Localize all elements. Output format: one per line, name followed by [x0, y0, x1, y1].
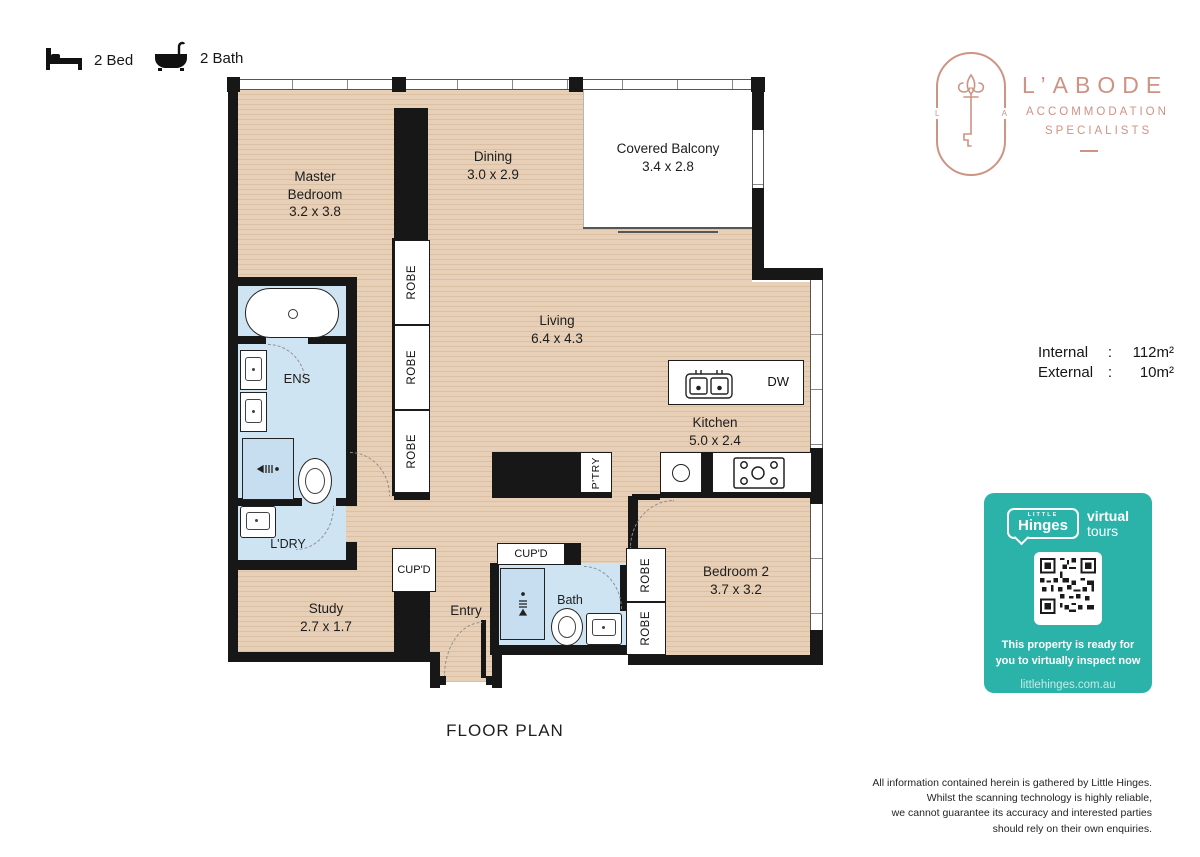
hinges-brand-label: Hinges — [1018, 518, 1068, 533]
tours-message-line1: This property is ready for — [1002, 639, 1135, 651]
cooktop-icon — [733, 457, 791, 489]
qr-code — [1034, 552, 1102, 625]
balcony-slider-track — [583, 227, 752, 229]
monogram-right: A — [1000, 108, 1009, 119]
room-name: Bedroom — [288, 187, 343, 202]
balcony-east-wall-lower — [752, 188, 764, 276]
south-wall-bedroom2 — [628, 655, 823, 665]
master-ensuite-wall — [238, 277, 357, 286]
disclaimer-line: All information contained herein is gath… — [872, 777, 1152, 789]
laundry-basin — [246, 512, 270, 530]
pantry-label: P'TRY — [590, 457, 602, 489]
bedroom2-east-window — [810, 504, 823, 630]
north-window-band — [238, 79, 755, 90]
room-dims: 3.7 x 3.2 — [710, 582, 762, 597]
laundry-label: L'DRY — [253, 536, 323, 552]
bedroom2-label: Bedroom 2 3.7 x 3.2 — [666, 563, 806, 598]
tours-message-line2: you to virtually inspect now — [996, 655, 1141, 667]
bedroom2-robe-2: ROBE — [626, 602, 666, 655]
bed-icon — [44, 44, 84, 77]
bed-count-label: 2 Bed — [94, 52, 133, 69]
bedroom2-robe-1: ROBE — [626, 548, 666, 602]
bath-north-wall-stub — [565, 543, 581, 565]
study-label: Study 2.7 x 1.7 — [266, 600, 386, 635]
ensuite-bathtub — [245, 288, 339, 338]
bath-cupboard: CUP'D — [497, 543, 565, 565]
double-sink-icon — [685, 369, 733, 399]
kitchen-base-wall-right — [660, 492, 812, 498]
ensuite-laundry-divider-stub — [336, 498, 357, 506]
sink-drain — [602, 626, 605, 629]
west-wall — [228, 84, 238, 662]
bath-toilet — [551, 608, 583, 646]
external-colon: : — [1102, 364, 1118, 381]
virtual-tours-card: LITTLE Hinges virtual tours — [984, 493, 1152, 693]
brand-subtitle-2: SPECIALISTS — [1045, 125, 1152, 137]
robe-1-label: ROBE — [406, 265, 418, 300]
robe-2-label: ROBE — [406, 350, 418, 385]
tours-label: tours — [1087, 524, 1129, 539]
qr-code-icon — [1040, 558, 1096, 614]
northeast-return-wall — [752, 268, 823, 280]
master-bedroom-label: Master Bedroom 3.2 x 3.8 — [270, 168, 360, 221]
balcony-east-window — [752, 130, 764, 188]
toilet-bowl — [558, 616, 577, 638]
bath-icon — [152, 40, 190, 77]
hinges-logo-bubble: LITTLE Hinges — [1007, 508, 1079, 539]
tours-message: This property is ready for you to virtua… — [996, 638, 1141, 670]
bedroom2-door-leaf — [632, 494, 660, 500]
balcony-slider-panel — [618, 231, 718, 233]
brand-logo-pill: L A — [936, 52, 1006, 176]
pantry: P'TRY — [580, 452, 612, 494]
robe-3: ROBE — [394, 410, 430, 493]
ensuite-toilet — [298, 458, 332, 504]
bedroom2-robe-1-label: ROBE — [640, 558, 652, 593]
room-name: L'DRY — [270, 537, 306, 551]
laundry-tub — [240, 506, 276, 538]
balcony-label: Covered Balcony 3.4 x 2.8 — [588, 140, 748, 175]
hinges-logo: LITTLE Hinges virtual tours — [1007, 508, 1129, 539]
study-entry-wall — [394, 592, 430, 652]
disclaimer-line: Whilst the scanning technology is highly… — [927, 792, 1152, 804]
disclaimer-line: should rely on their own enquiries. — [993, 823, 1152, 835]
room-name: Bath — [557, 593, 583, 607]
area-summary: Internal : 112m² External : 10m² — [1038, 344, 1174, 381]
ensuite-shower — [242, 438, 294, 500]
disclaimer: All information contained herein is gath… — [832, 776, 1152, 837]
oven-icon — [672, 464, 690, 482]
room-name: Living — [539, 313, 574, 328]
entry-cupboard-label: CUP'D — [397, 564, 430, 576]
bath-south-wall — [490, 645, 628, 655]
virtual-label: virtual — [1087, 509, 1129, 524]
room-name: Bedroom 2 — [703, 564, 769, 579]
room-dims: 3.2 x 3.8 — [289, 204, 341, 219]
floor-mid-row — [238, 230, 752, 282]
oven-counter — [660, 452, 702, 494]
vanity-drain — [252, 368, 255, 371]
entry-door-jamb-right — [486, 676, 502, 685]
cooktop-counter — [712, 452, 812, 494]
living-east-window — [810, 280, 823, 448]
shower-icon — [516, 591, 530, 617]
room-name: ENS — [284, 371, 311, 386]
room-name: Dining — [474, 149, 512, 164]
bath-shower — [500, 568, 545, 640]
brand-name: L’ABODE — [1022, 72, 1168, 99]
robe-2: ROBE — [394, 325, 430, 410]
room-dims: 5.0 x 2.4 — [689, 433, 741, 448]
page-title: FLOOR PLAN — [380, 721, 630, 741]
internal-area-value: 112m² — [1118, 344, 1174, 361]
fleur-de-lis-key-icon — [952, 70, 990, 161]
ensuite-label: ENS — [267, 371, 327, 388]
south-wall-study — [228, 652, 440, 662]
robe-column-cap — [394, 493, 430, 500]
room-name: Covered Balcony — [617, 141, 720, 156]
robe-3-label: ROBE — [406, 434, 418, 469]
living-label: Living 6.4 x 4.3 — [497, 312, 617, 347]
bath-sink — [586, 613, 622, 645]
balcony-east-wall-upper — [752, 84, 764, 130]
tub-nook-wall-left — [238, 336, 266, 344]
entry-door-jamb-left — [430, 676, 446, 685]
laundry-south-wall — [238, 560, 357, 570]
room-dims: 6.4 x 4.3 — [531, 331, 583, 346]
ensuite-vanity-2 — [240, 392, 267, 432]
kitchen-base-wall-left — [492, 492, 612, 498]
bed-legend: 2 Bed — [44, 44, 133, 77]
shower-icon — [256, 462, 280, 476]
brand-subtitle-1: ACCOMMODATION — [1026, 106, 1169, 118]
bath-cupboard-label: CUP'D — [514, 548, 547, 560]
disclaimer-line: we cannot guarantee its accuracy and int… — [892, 807, 1152, 819]
bedroom2-robe-2-label: ROBE — [640, 611, 652, 646]
toilet-bowl — [305, 468, 325, 494]
dishwasher-label: DW — [767, 374, 789, 389]
wall-post — [392, 77, 406, 92]
room-name: Master — [294, 169, 335, 184]
dining-west-wall — [394, 108, 428, 240]
counter-divider-wall — [702, 452, 712, 494]
external-area-value: 10m² — [1118, 364, 1174, 381]
bath-legend: 2 Bath — [152, 40, 243, 77]
robe-1: ROBE — [394, 240, 430, 325]
entry-cupboard: CUP'D — [392, 548, 436, 592]
kitchen-island: DW — [668, 360, 804, 405]
bath-label: Bath — [540, 592, 600, 608]
internal-colon: : — [1102, 344, 1118, 361]
dining-label: Dining 3.0 x 2.9 — [433, 148, 553, 183]
tours-url: littlehinges.com.au — [1020, 679, 1115, 691]
internal-area-label: Internal — [1038, 344, 1102, 361]
kitchen-label: Kitchen 5.0 x 2.4 — [655, 414, 775, 449]
monogram-left: L — [933, 108, 941, 119]
vanity-drain — [252, 410, 255, 413]
pantry-wall-block — [492, 452, 580, 494]
floorplan-page: 2 Bed 2 Bath L A L’ABODE ACCOMMODATION S… — [0, 0, 1200, 857]
ensuite-vanity-1 — [240, 350, 267, 390]
wall-post — [569, 77, 583, 92]
room-dims: 2.7 x 1.7 — [300, 619, 352, 634]
external-area-label: External — [1038, 364, 1102, 381]
bath-count-label: 2 Bath — [200, 50, 243, 67]
room-dims: 3.0 x 2.9 — [467, 167, 519, 182]
room-name: Kitchen — [692, 415, 737, 430]
entry-label: Entry — [431, 602, 501, 620]
room-dims: 3.4 x 2.8 — [642, 159, 694, 174]
room-name: Study — [309, 601, 344, 616]
bathtub-drain — [288, 309, 298, 319]
brand-dash — [1080, 150, 1098, 152]
room-name: Entry — [450, 603, 482, 618]
laundry-drain — [255, 519, 258, 522]
